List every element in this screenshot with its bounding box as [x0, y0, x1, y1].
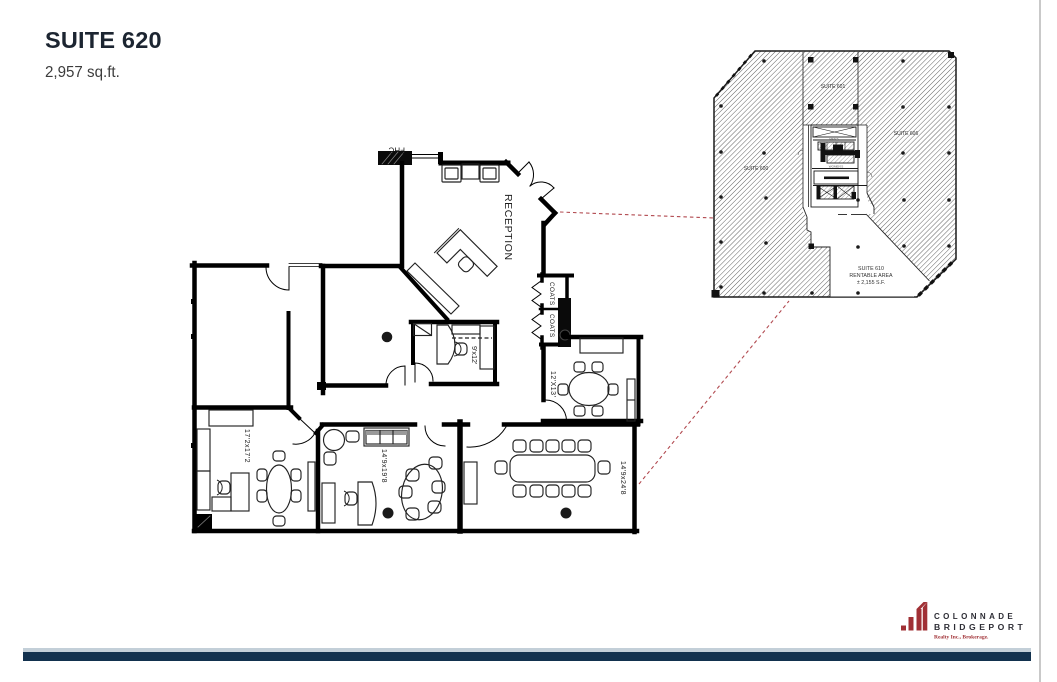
svg-text:WOMEN'S: WOMEN'S	[829, 165, 843, 169]
svg-text:14'9x24'8: 14'9x24'8	[619, 461, 626, 495]
svg-text:17'2x17'2: 17'2x17'2	[243, 429, 250, 463]
svg-text:12'X13': 12'X13'	[549, 371, 556, 397]
svg-text:Realty Inc., Brokerage.: Realty Inc., Brokerage.	[934, 635, 989, 641]
svg-text:SUITE 601: SUITE 601	[821, 84, 846, 90]
svg-text:14'9x19'8: 14'9x19'8	[380, 449, 387, 483]
svg-text:9'x12': 9'x12'	[470, 346, 479, 365]
svg-text:SUITE 606: SUITE 606	[894, 131, 919, 137]
svg-text:SUITE 600: SUITE 600	[744, 166, 769, 172]
svg-text:MEN'S: MEN'S	[829, 137, 838, 141]
svg-text:± 2,155 S.F.: ± 2,155 S.F.	[857, 280, 885, 286]
svg-text:COLONNADE: COLONNADE	[934, 612, 1016, 621]
svg-text:RECEPTION: RECEPTION	[502, 194, 514, 261]
svg-text:SUITE 610: SUITE 610	[858, 266, 884, 272]
svg-text:RENTABLE AREA: RENTABLE AREA	[849, 273, 893, 279]
svg-text:COATS: COATS	[548, 314, 555, 338]
svg-text:BRIDGEPORT: BRIDGEPORT	[934, 622, 1026, 632]
svg-text:COATS: COATS	[548, 282, 555, 306]
svg-text:FHC: FHC	[388, 146, 405, 155]
